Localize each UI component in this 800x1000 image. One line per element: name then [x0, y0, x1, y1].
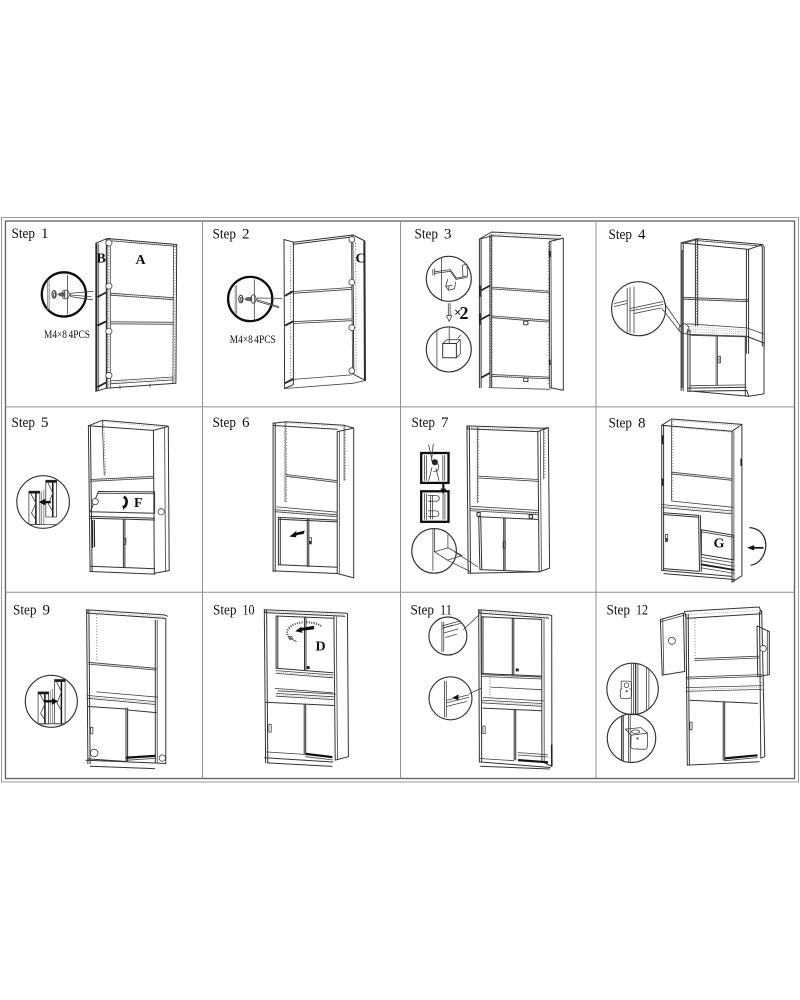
svg-text:Step: Step: [411, 603, 435, 619]
svg-text:Step: Step: [213, 415, 237, 431]
svg-text:D: D: [316, 640, 326, 655]
svg-text:4: 4: [638, 227, 646, 243]
svg-text:Step: Step: [12, 415, 36, 431]
svg-text:Step: Step: [609, 415, 633, 431]
svg-text:8: 8: [638, 415, 646, 431]
svg-text:B: B: [97, 252, 106, 267]
svg-text:5: 5: [41, 415, 49, 431]
svg-text:1: 1: [41, 226, 49, 242]
svg-text:4PCS: 4PCS: [69, 329, 91, 341]
svg-text:F: F: [134, 496, 143, 511]
svg-text:Step: Step: [412, 415, 436, 431]
svg-text:4PCS: 4PCS: [254, 334, 275, 346]
svg-text:Step: Step: [13, 603, 37, 619]
svg-text:2: 2: [460, 303, 469, 323]
svg-text:11: 11: [440, 603, 452, 619]
svg-text:3: 3: [444, 226, 452, 242]
svg-text:6: 6: [242, 415, 250, 431]
svg-text:A: A: [136, 253, 147, 268]
svg-text:9: 9: [43, 603, 51, 619]
svg-text:7: 7: [441, 415, 449, 431]
svg-text:Step: Step: [609, 227, 633, 243]
svg-text:Step: Step: [607, 603, 631, 619]
svg-text:2: 2: [242, 226, 250, 242]
svg-text:Step: Step: [213, 226, 237, 242]
svg-text:M4×8: M4×8: [230, 334, 253, 346]
svg-text:Step: Step: [213, 603, 237, 619]
svg-text:M4×8: M4×8: [44, 329, 67, 341]
svg-text:10: 10: [243, 603, 255, 619]
svg-text:Step: Step: [12, 226, 36, 242]
svg-text:C: C: [356, 252, 366, 267]
svg-text:12: 12: [636, 603, 648, 619]
svg-text:Step: Step: [415, 226, 439, 242]
svg-text:G: G: [714, 537, 725, 552]
